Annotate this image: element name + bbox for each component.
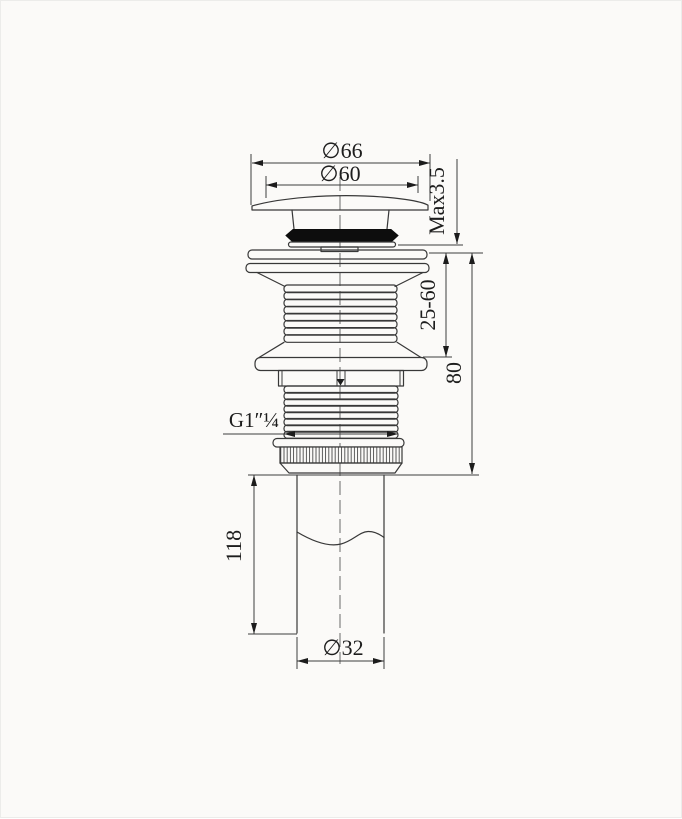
label-tailpipe-diameter: ∅32 xyxy=(322,635,363,660)
knurled-nut xyxy=(273,439,404,474)
label-cap-max-height: Max3.5 xyxy=(424,167,449,235)
gasket-neck xyxy=(321,247,358,252)
dim-tailpipe-length: 118 xyxy=(221,475,297,634)
center-mark xyxy=(337,379,345,386)
label-clamp-range: 25-60 xyxy=(415,279,440,330)
upper-thread-section xyxy=(284,285,397,342)
break-line xyxy=(297,531,384,544)
dim-clamp-range: 25-60 xyxy=(415,253,483,357)
dim-tailpipe-diameter: ∅32 xyxy=(297,635,384,669)
label-body-height: 80 xyxy=(441,362,466,384)
label-cap-inner-diameter: ∅60 xyxy=(319,161,360,186)
cap-stem xyxy=(292,210,389,229)
label-tailpipe-length: 118 xyxy=(221,530,246,562)
dim-cap-inner-diameter: ∅60 xyxy=(266,161,418,198)
dim-body-height: 80 xyxy=(248,253,479,475)
technical-drawing: ∅66 ∅60 Max3.5 25-60 80 G1″¼ xyxy=(1,1,682,819)
label-thread-spec: G1″¼ xyxy=(229,408,279,432)
lower-thread-section xyxy=(284,386,398,438)
gasket-washer xyxy=(289,242,396,247)
drawing-canvas: ∅66 ∅60 Max3.5 25-60 80 G1″¼ xyxy=(0,0,682,818)
top-flange xyxy=(246,250,429,287)
rubber-gasket xyxy=(286,230,398,252)
flange-disc xyxy=(255,358,427,371)
tail-pipe xyxy=(297,475,384,633)
label-cap-outer-diameter: ∅66 xyxy=(321,138,362,163)
dim-cap-max-height: Max3.5 xyxy=(398,159,463,245)
knurl-band xyxy=(280,447,402,463)
flange-disc-transition xyxy=(255,342,427,386)
